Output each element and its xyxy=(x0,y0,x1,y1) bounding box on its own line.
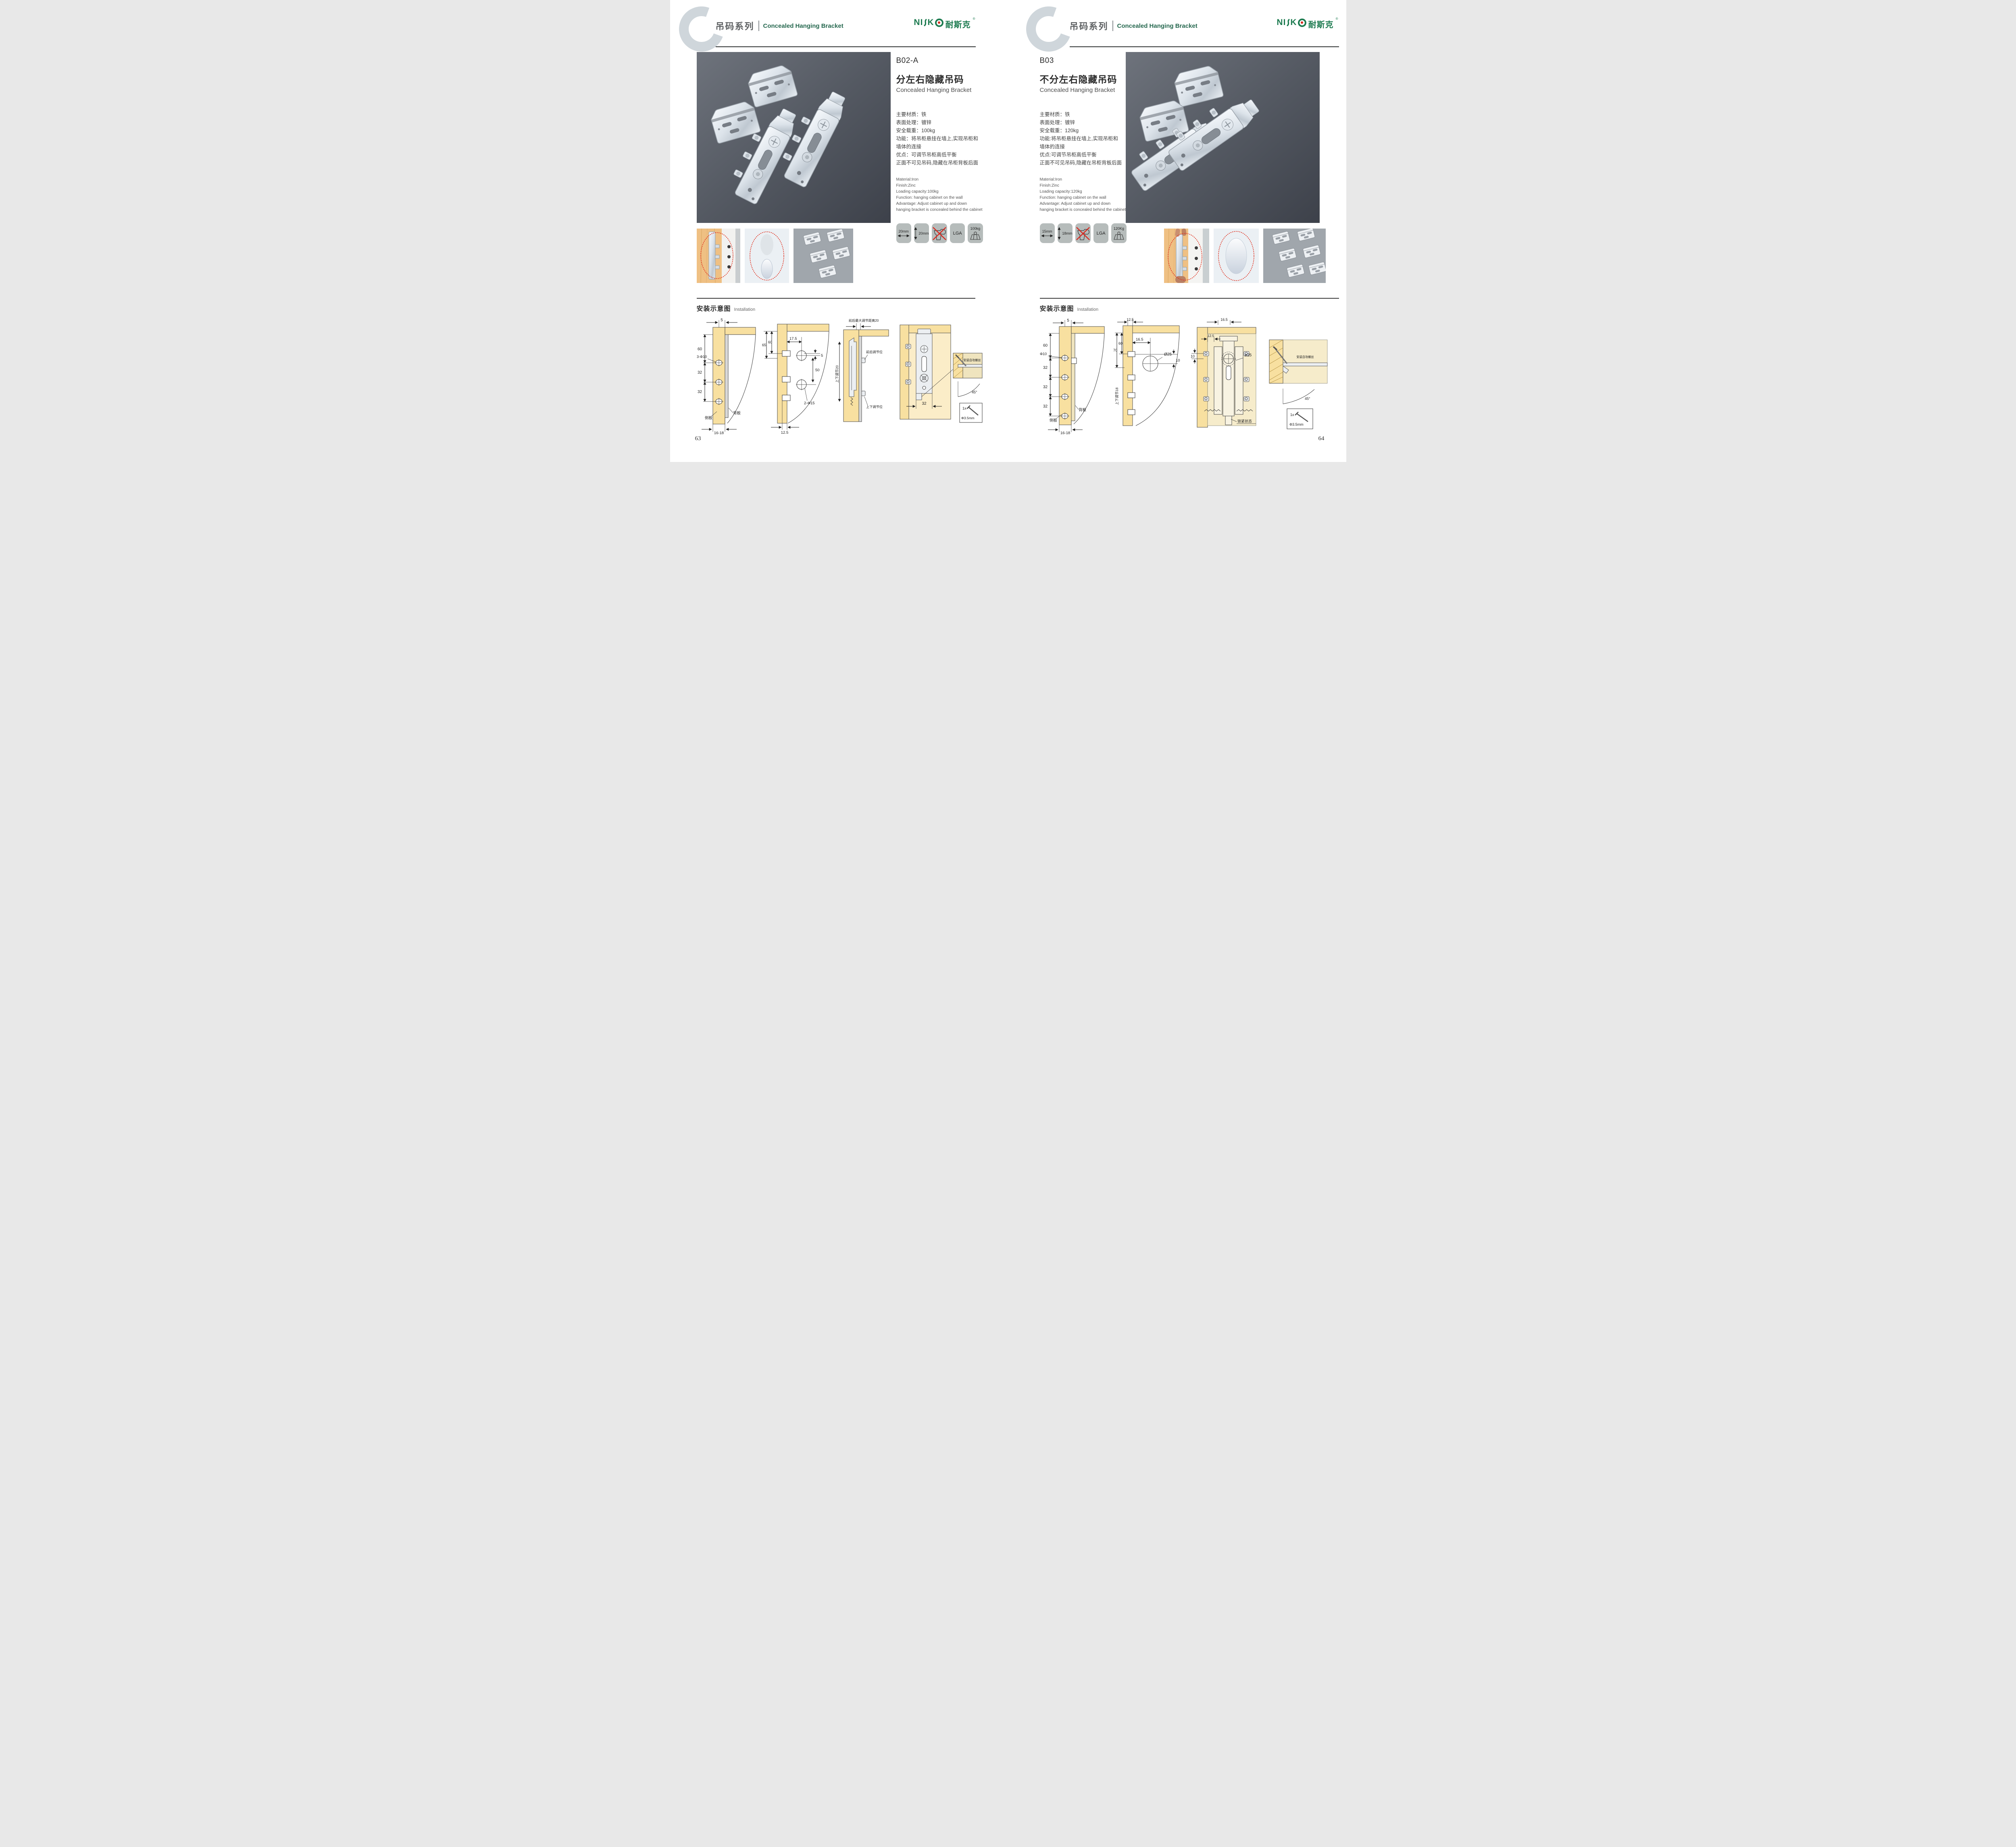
svg-text:60: 60 xyxy=(1118,341,1123,345)
logo-o-icon xyxy=(935,19,943,27)
spec-line: 正面不可见吊码,隐藏在吊柜背板后面 xyxy=(896,159,983,167)
badge-width: 20mm xyxy=(896,223,911,243)
svg-text:65: 65 xyxy=(762,343,766,347)
diagram-bracket-locked: 16.5 xyxy=(1191,318,1261,435)
section-divider xyxy=(1040,298,1339,299)
page-number: 64 xyxy=(1318,435,1325,442)
spec-line: 主要材质：铁 xyxy=(1040,110,1127,119)
diagram-screw-detail: 安装自攻螺丝 45° 1x Φ3.5mm xyxy=(1266,318,1331,435)
svg-text:16.5: 16.5 xyxy=(1220,318,1228,322)
spec-line: 功能:将吊柜悬挂在墙上,实现吊柜和 xyxy=(1040,135,1127,143)
brand-logo-cn: 耐斯克 xyxy=(1308,18,1334,30)
svg-text:1x: 1x xyxy=(962,406,966,410)
svg-text:45°: 45° xyxy=(1305,397,1310,401)
diagram-hole-positions: 12.5 70 60 16.5 Ø25 10 上下调节18 xyxy=(1113,318,1186,435)
thumb-wall-plates-set xyxy=(1263,229,1326,283)
spec-line: 表面处理：镀锌 xyxy=(1040,119,1127,127)
svg-text:16-18: 16-18 xyxy=(1060,431,1070,435)
diagram-hole-positions: 65 60 17.5 5 50 2-Φ15 12.5 xyxy=(762,318,831,435)
svg-text:Φ3.5mm: Φ3.5mm xyxy=(1289,422,1304,426)
logo-s-glyph xyxy=(923,19,927,27)
vertical-arrow-icon xyxy=(1058,226,1061,241)
svg-text:Φ10: Φ10 xyxy=(1040,352,1047,356)
specs-cn: 主要材质：铁 表面处理：镀锌 安全载重：120kg 功能:将吊柜悬挂在墙上,实现… xyxy=(1040,110,1127,167)
horizontal-arrow-icon xyxy=(896,234,911,237)
spec-line: Loading capacity:100kg xyxy=(896,189,983,195)
svg-text:32: 32 xyxy=(1043,404,1048,409)
svg-text:上下调节18: 上下调节18 xyxy=(1115,387,1119,405)
svg-text:32: 32 xyxy=(1043,366,1048,370)
series-header: 吊码系列 Concealed Hanging Bracket xyxy=(716,19,843,32)
svg-text:17.5: 17.5 xyxy=(789,337,797,341)
logo-o-icon xyxy=(1298,19,1306,27)
svg-text:上下调节20: 上下调节20 xyxy=(835,365,839,383)
weight-icon xyxy=(1112,231,1126,240)
registered-mark: ® xyxy=(1336,17,1338,21)
installation-diagrams: 5 60 32 32 32 Φ10 背板 侧板 16-18 xyxy=(1040,318,1331,435)
brand-logo-latin: NIK xyxy=(914,18,943,27)
svg-text:5: 5 xyxy=(821,354,823,358)
badge-height: 20mm xyxy=(914,223,929,243)
spec-line: 安全载重：100kg xyxy=(896,127,983,135)
diagram-mounting-detail: 32 安装自攻螺丝 45° 1x Φ3.5mm xyxy=(897,318,983,435)
registered-mark: ® xyxy=(973,17,975,21)
diagram-adjustment: 前后最大调节距离20 上下调节20 前后调节位 上下调节位 xyxy=(835,318,892,435)
product-title-en: Concealed Hanging Bracket xyxy=(1040,87,1127,94)
badge-cert: LGA xyxy=(950,223,965,243)
specs-en: Material:Iron Finish:Zinc Loading capaci… xyxy=(1040,177,1127,213)
svg-text:50: 50 xyxy=(815,368,820,372)
svg-text:5: 5 xyxy=(1067,318,1069,323)
svg-text:32: 32 xyxy=(698,370,702,375)
svg-text:60: 60 xyxy=(768,340,772,344)
thumb-bracket-install-hand xyxy=(1164,229,1209,283)
badge-load: 120Kg xyxy=(1111,223,1126,243)
product-photo-b02a xyxy=(697,52,891,223)
svg-text:12.5: 12.5 xyxy=(781,431,788,435)
svg-text:1x: 1x xyxy=(1290,413,1294,417)
logo-red-dot xyxy=(1301,21,1303,24)
svg-text:3-Φ10: 3-Φ10 xyxy=(697,355,707,359)
thumbnail-row xyxy=(1164,229,1326,283)
page-63: 吊码系列 Concealed Hanging Bracket NIK 耐斯克 ®… xyxy=(670,0,1008,462)
logo-red-dot xyxy=(938,21,940,24)
spec-line: Loading capacity:120kg xyxy=(1040,189,1127,195)
spec-line: hanging bracket is concealed behind the … xyxy=(1040,207,1127,213)
product-info-b02a: B02-A 分左右隐藏吊码 Concealed Hanging Bracket … xyxy=(896,56,983,243)
svg-text:背板: 背板 xyxy=(1079,408,1087,412)
feature-badges: 20mm 20mm LGA 100kg xyxy=(896,223,983,243)
badge-no-drill xyxy=(1075,223,1091,243)
brand-logo-latin: NIK xyxy=(1277,18,1306,27)
product-title-cn: 分左右隐藏吊码 xyxy=(896,72,983,85)
spec-line: 主要材质：铁 xyxy=(896,110,983,119)
svg-text:70: 70 xyxy=(1113,348,1117,352)
svg-text:5: 5 xyxy=(721,318,723,322)
product-code: B03 xyxy=(1040,56,1127,65)
svg-text:45°: 45° xyxy=(972,390,977,394)
weight-icon xyxy=(968,231,982,240)
horizontal-arrow-icon xyxy=(1040,234,1054,237)
vertical-arrow-icon xyxy=(914,226,917,241)
svg-text:32: 32 xyxy=(922,401,927,406)
series-title-en: Concealed Hanging Bracket xyxy=(763,23,843,29)
product-title-cn: 不分左右隐藏吊码 xyxy=(1040,72,1127,85)
spec-line: 正面不可见吊码,隐藏在吊柜背板后面 xyxy=(1040,159,1127,167)
badge-cert: LGA xyxy=(1093,223,1108,243)
logo-s-glyph xyxy=(1286,19,1290,27)
svg-text:60: 60 xyxy=(698,347,702,352)
svg-text:ø25: ø25 xyxy=(1245,353,1252,358)
brand-logo: NIK 耐斯克 ® xyxy=(1277,18,1338,30)
svg-text:10: 10 xyxy=(1176,358,1180,363)
svg-text:前后调节位: 前后调节位 xyxy=(866,350,883,354)
catalog-spread: 吊码系列 Concealed Hanging Bracket NIK 耐斯克 ®… xyxy=(670,0,1346,462)
svg-text:12.5: 12.5 xyxy=(1207,334,1214,338)
series-title-cn: 吊码系列 xyxy=(1070,19,1108,32)
spec-line: 墙体的连接 xyxy=(896,143,983,151)
thumb-back-panel-hole xyxy=(1214,229,1259,283)
spec-line: Function: hanging cabinet on the wall xyxy=(896,195,983,201)
svg-text:前后最大调节距离20: 前后最大调节距离20 xyxy=(848,318,879,322)
svg-text:16.5: 16.5 xyxy=(1136,337,1143,342)
spec-line: 优点:可调节吊柜高低平衡 xyxy=(1040,151,1127,159)
header-rule xyxy=(716,46,976,47)
spec-line: Material:Iron xyxy=(896,177,983,183)
product-info-b03: B03 不分左右隐藏吊码 Concealed Hanging Bracket 主… xyxy=(1040,56,1127,243)
page-64: 吊码系列 Concealed Hanging Bracket NIK 耐斯克 ®… xyxy=(1008,0,1346,462)
spec-line: 功能：将吊柜悬挂在墙上,实现吊柜和 xyxy=(896,135,983,143)
brand-logo: NIK 耐斯克 ® xyxy=(914,18,975,30)
installation-diagrams: 5 60 32 32 3-Φ10 侧板 背板 16-18 xyxy=(697,318,983,435)
spec-line: Advantage: Adjust cabinet up and down xyxy=(896,201,983,207)
spec-line: 安全载重：120kg xyxy=(1040,127,1127,135)
svg-text:背板: 背板 xyxy=(733,411,741,416)
page-number: 63 xyxy=(695,435,701,442)
thumbnail-row xyxy=(697,229,853,283)
svg-text:16-18: 16-18 xyxy=(714,431,723,435)
spec-line: 表面处理：镀锌 xyxy=(896,119,983,127)
specs-cn: 主要材质：铁 表面处理：镀锌 安全载重：100kg 功能：将吊柜悬挂在墙上,实现… xyxy=(896,110,983,167)
spec-line: Finish:Zinc xyxy=(896,183,983,189)
product-title-en: Concealed Hanging Bracket xyxy=(896,87,983,94)
svg-text:32: 32 xyxy=(1043,385,1048,389)
header-divider xyxy=(1112,21,1113,31)
series-header: 吊码系列 Concealed Hanging Bracket xyxy=(1070,19,1198,32)
thumb-bracket-on-wood xyxy=(697,229,740,283)
spec-line: Finish:Zinc xyxy=(1040,183,1127,189)
svg-text:安装自攻螺丝: 安装自攻螺丝 xyxy=(963,358,981,362)
spec-line: Material:Iron xyxy=(1040,177,1127,183)
spec-line: 墙体的连接 xyxy=(1040,143,1127,151)
svg-text:上下调节位: 上下调节位 xyxy=(866,405,883,409)
svg-text:60: 60 xyxy=(1043,343,1048,348)
svg-text:安装自攻螺丝: 安装自攻螺丝 xyxy=(1296,355,1314,359)
svg-text:32: 32 xyxy=(698,390,702,394)
thumb-back-panel-holes xyxy=(745,229,789,283)
installation-heading: 安装示意图 Installation xyxy=(1040,303,1099,313)
svg-text:12.5: 12.5 xyxy=(1127,318,1134,322)
section-divider xyxy=(697,298,975,299)
header-divider xyxy=(758,21,759,31)
installation-heading: 安装示意图 Installation xyxy=(697,303,756,313)
badge-width: 15mm xyxy=(1040,223,1055,243)
thumb-wall-plates-set xyxy=(793,229,853,283)
badge-height: 18mm xyxy=(1058,223,1073,243)
diagram-side-panel-drilling: 5 60 32 32 32 Φ10 背板 侧板 16-18 xyxy=(1040,318,1108,435)
svg-text:Φ3.5mm: Φ3.5mm xyxy=(961,416,975,420)
svg-text:Ø25: Ø25 xyxy=(1164,352,1172,357)
no-drill-icon xyxy=(1075,225,1091,241)
brand-logo-cn: 耐斯克 xyxy=(946,18,971,30)
feature-badges: 15mm 18mm LGA 120Kg xyxy=(1040,223,1127,243)
no-drill-icon xyxy=(932,225,947,241)
spec-line: 优点：可调节吊柜高低平衡 xyxy=(896,151,983,159)
svg-text:2-Φ15: 2-Φ15 xyxy=(804,401,815,406)
product-code: B02-A xyxy=(896,56,983,65)
header-rule xyxy=(1070,46,1339,47)
spec-line: Advantage: Adjust cabinet up and down xyxy=(1040,201,1127,207)
badge-load: 100kg xyxy=(968,223,983,243)
series-title-en: Concealed Hanging Bracket xyxy=(1117,23,1198,29)
product-photo-b03 xyxy=(1126,52,1320,223)
series-title-cn: 吊码系列 xyxy=(716,19,754,32)
spec-line: Function: hanging cabinet on the wall xyxy=(1040,195,1127,201)
diagram-side-panel-drilling: 5 60 32 32 3-Φ10 侧板 背板 16-18 xyxy=(697,318,757,435)
svg-text:锁紧状态: 锁紧状态 xyxy=(1237,419,1252,423)
spec-line: hanging bracket is concealed behind the … xyxy=(896,207,983,213)
svg-text:10: 10 xyxy=(1191,354,1195,358)
badge-no-drill xyxy=(932,223,947,243)
specs-en: Material:Iron Finish:Zinc Loading capaci… xyxy=(896,177,983,213)
